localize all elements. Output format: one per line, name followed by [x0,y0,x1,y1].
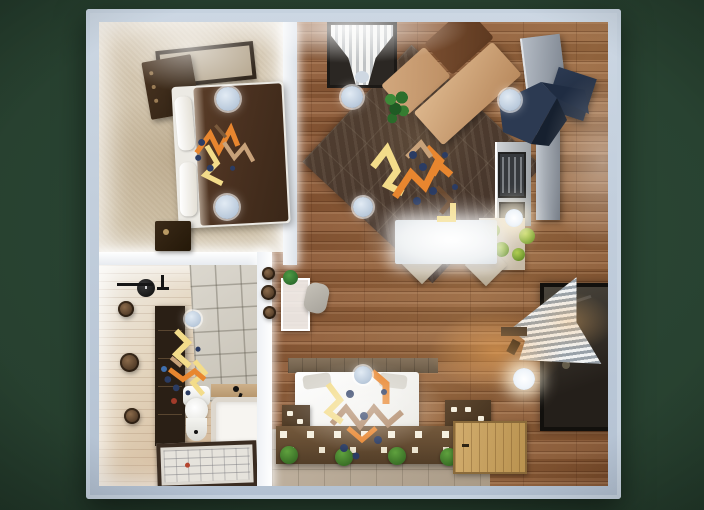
apartment-outer-walls [86,9,621,499]
framed-floor-mat[interactable] [156,440,257,486]
oven[interactable] [498,152,526,198]
potted-plant[interactable] [381,88,413,126]
door-handle-icon [462,444,469,447]
decor-zigzag[interactable] [367,127,467,227]
nightstand[interactable] [155,221,191,251]
shelf-plant[interactable] [280,446,298,464]
ceiling-light-lit[interactable] [505,209,523,227]
ceiling-light[interactable] [341,86,363,108]
candle-icon [451,407,457,412]
candle-icon [465,407,471,412]
desk-plant[interactable] [283,270,298,285]
render-stage [0,0,704,510]
herb-plant[interactable] [519,228,535,244]
wicker-plate[interactable] [118,301,134,317]
candle-icon [287,411,293,416]
wall-shelf[interactable] [501,327,527,336]
bathroom [99,265,257,486]
toilet-flush-icon [194,430,198,434]
ceiling-light[interactable] [353,197,373,217]
wicker-plate[interactable] [124,408,140,424]
wall-bedroom-bathroom [99,252,270,265]
ceiling-light[interactable] [185,311,201,327]
ceiling-light[interactable] [354,366,372,384]
towel-hook[interactable] [161,275,164,290]
ceiling-light-lit[interactable] [513,368,535,390]
wicker-plate[interactable] [120,353,139,372]
towel-bar[interactable] [117,283,153,286]
apartment-interior [99,22,608,486]
ceiling-light[interactable] [215,195,239,219]
wall-clock[interactable] [137,279,155,297]
wall-plate[interactable] [261,285,276,300]
entry-door[interactable] [453,421,527,474]
herb-plant[interactable] [512,248,525,261]
nightstand-item-icon [163,229,169,235]
ceiling-light[interactable] [499,89,521,111]
wall-plate[interactable] [262,267,275,280]
wall-plate[interactable] [263,306,276,319]
dresser-knobs-icon [149,71,154,76]
ceiling-light[interactable] [216,87,240,111]
decor-zigzag[interactable] [151,320,235,412]
shelf-divider [158,414,182,415]
decor-zigzag[interactable] [181,108,267,194]
